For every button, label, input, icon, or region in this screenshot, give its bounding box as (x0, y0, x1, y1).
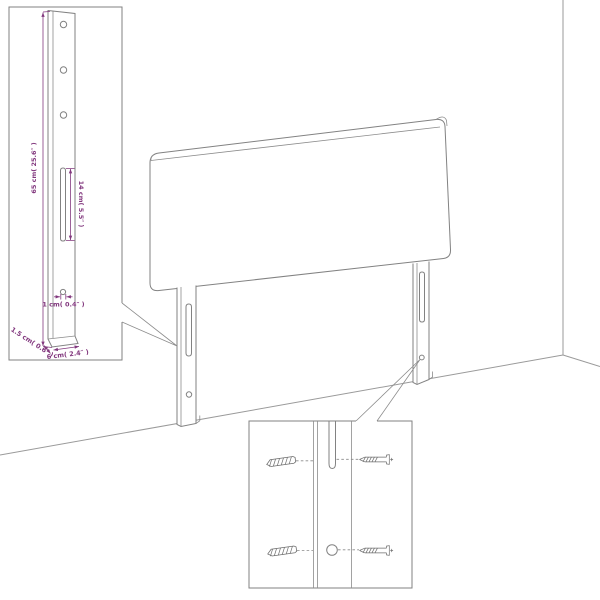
left-leg (177, 286, 200, 427)
dimension-label-slot-length: 14 cm( 5.5″ ) (77, 181, 85, 228)
headboard-panel (150, 117, 451, 291)
post-drawing (48, 11, 78, 348)
screw-detail-callout (249, 360, 420, 589)
floor-line-right (563, 355, 600, 367)
callout-box-frame (249, 421, 412, 588)
dimension-label-post-height: 65 cm( 25.6″ ) (30, 142, 38, 193)
dimension-label-hole-diameter: 1 cm( 0.4″ ) (42, 301, 84, 309)
callout-leader-lines (122, 303, 177, 346)
right-leg (413, 262, 433, 385)
headboard-assembly-diagram: 65 cm( 25.6″ ) 14 cm( 5.5″ ) 1 cm( 0.4″ … (0, 0, 600, 600)
diagram-canvas: 65 cm( 25.6″ ) 14 cm( 5.5″ ) 1 cm( 0.4″ … (0, 0, 600, 600)
